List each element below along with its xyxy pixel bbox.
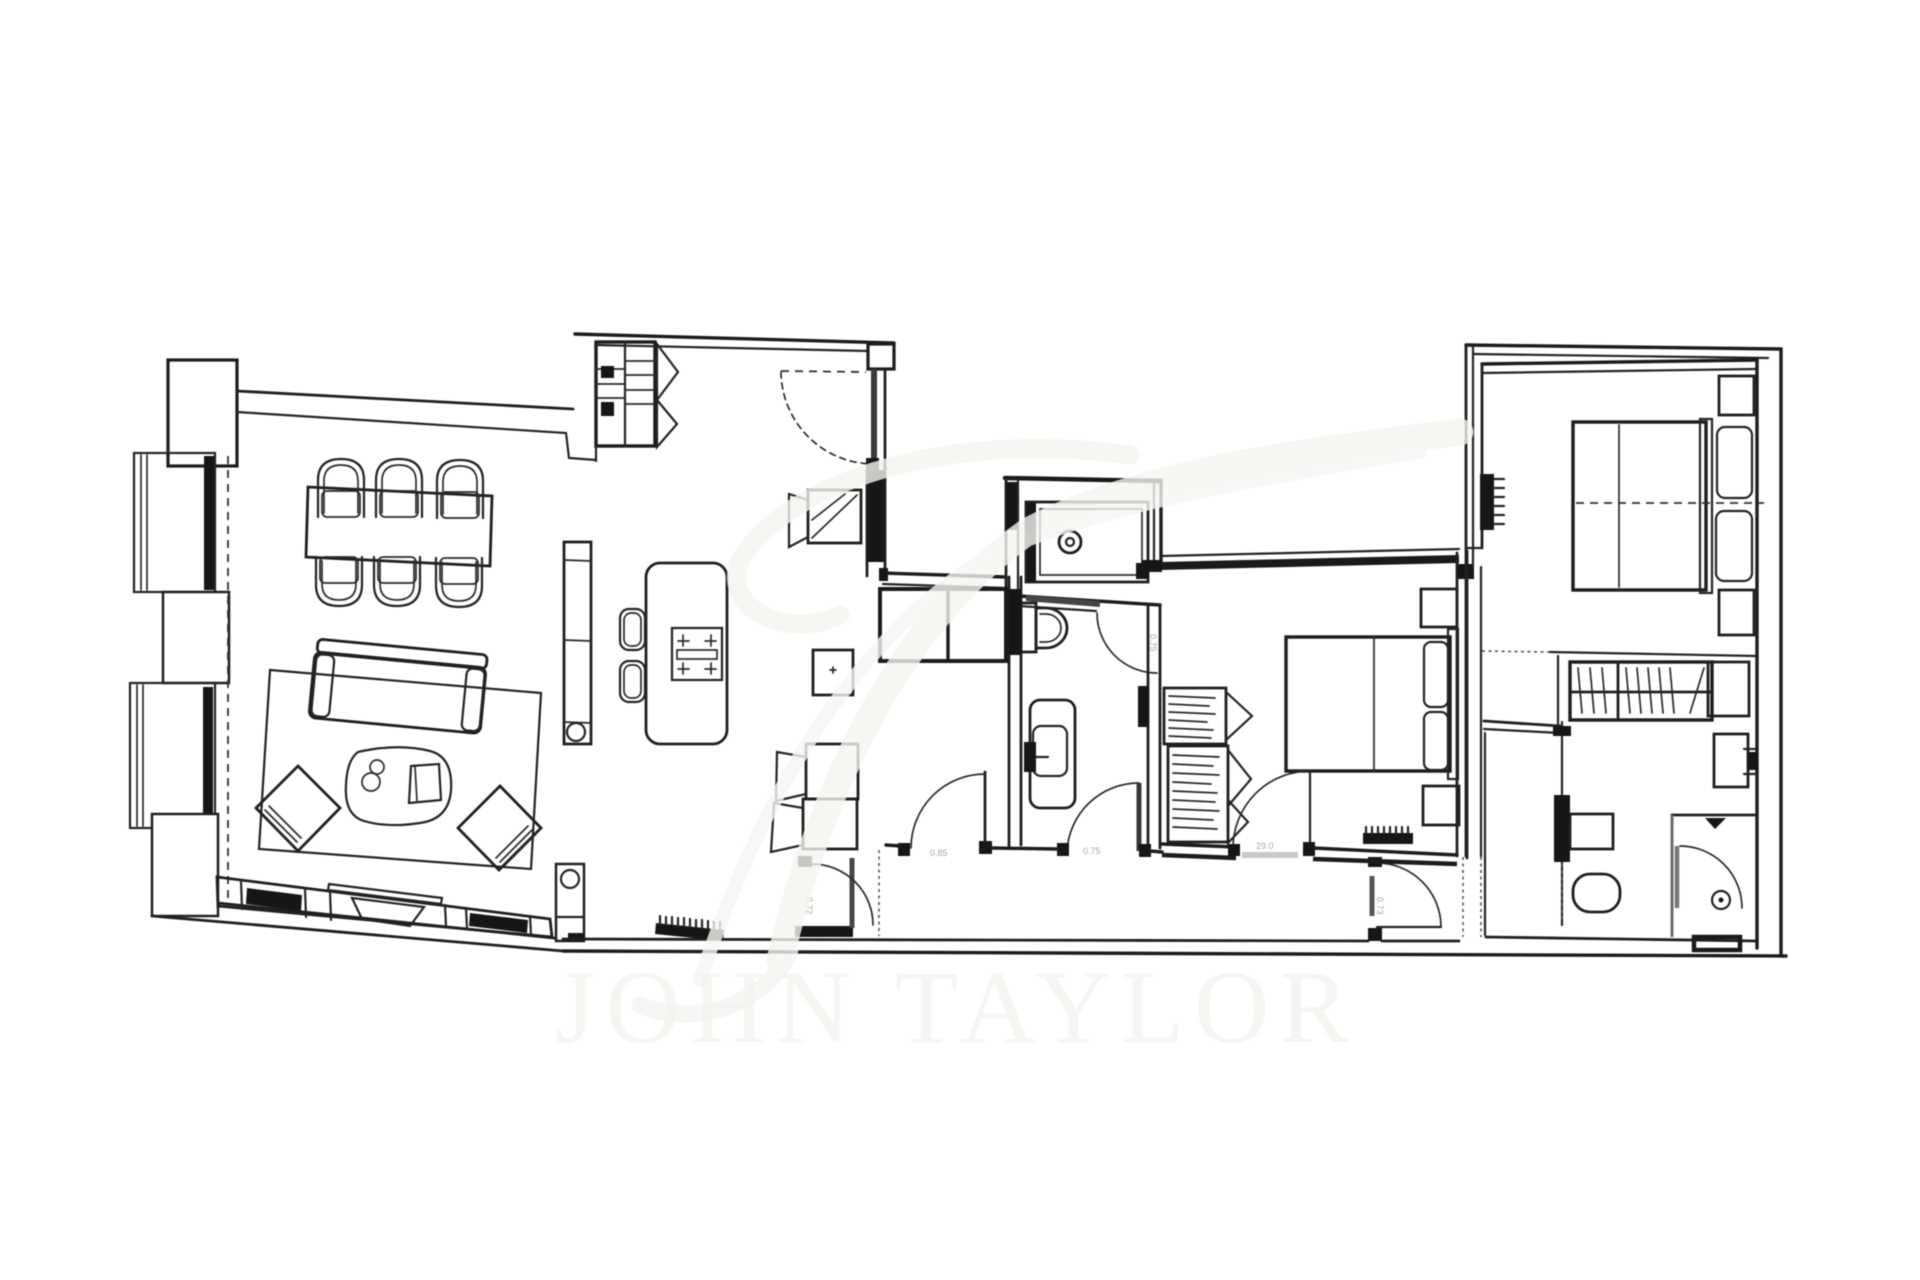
svg-text:0.75: 0.75 bbox=[1148, 634, 1158, 652]
svg-text:0.73: 0.73 bbox=[1375, 897, 1385, 915]
svg-text:0.75: 0.75 bbox=[1083, 846, 1101, 856]
svg-text:29.0: 29.0 bbox=[1256, 841, 1274, 851]
svg-text:0.85: 0.85 bbox=[930, 848, 948, 858]
svg-text:JOHN TAYLOR: JOHN TAYLOR bbox=[555, 950, 1359, 1065]
